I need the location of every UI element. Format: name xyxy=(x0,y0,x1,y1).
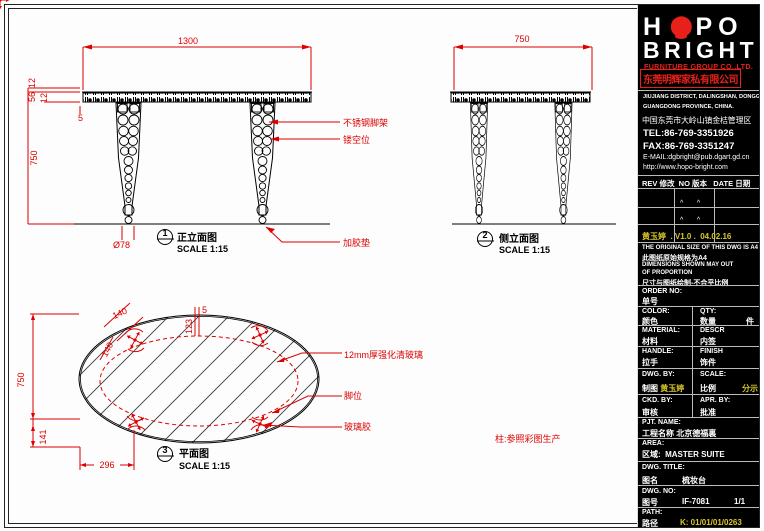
svg-text:12: 12 xyxy=(27,78,37,88)
svg-text:12mm厚强化清玻璃: 12mm厚强化清玻璃 xyxy=(344,349,423,360)
svg-text:141: 141 xyxy=(38,429,48,444)
svg-text:SCALE 1:15: SCALE 1:15 xyxy=(177,244,228,254)
svg-text:750: 750 xyxy=(514,34,529,44)
svg-text:750: 750 xyxy=(16,372,26,387)
svg-text:750: 750 xyxy=(29,150,39,165)
svg-text:柱:参照彩图生产: 柱:参照彩图生产 xyxy=(495,433,561,444)
svg-text:玻璃胶: 玻璃胶 xyxy=(344,421,371,432)
svg-text:镂空位: 镂空位 xyxy=(343,134,370,145)
svg-text:140: 140 xyxy=(111,306,129,321)
svg-text:3: 3 xyxy=(162,445,167,455)
svg-text:1300: 1300 xyxy=(178,36,198,46)
svg-text:不锈钢脚架: 不锈钢脚架 xyxy=(343,117,388,128)
svg-text:脚位: 脚位 xyxy=(344,390,362,401)
svg-text:5: 5 xyxy=(202,305,207,315)
svg-text:5: 5 xyxy=(78,113,83,123)
svg-text:SCALE 1:15: SCALE 1:15 xyxy=(499,245,550,255)
svg-text:Ø78: Ø78 xyxy=(113,240,130,250)
svg-text:侧立面图: 侧立面图 xyxy=(499,232,539,245)
svg-text:123: 123 xyxy=(184,319,194,334)
svg-text:正立面图: 正立面图 xyxy=(177,231,217,244)
svg-text:加胶垫: 加胶垫 xyxy=(343,237,370,248)
svg-text:2: 2 xyxy=(482,230,487,240)
svg-text:296: 296 xyxy=(99,460,114,470)
svg-text:56: 56 xyxy=(27,92,37,102)
svg-text:平面图: 平面图 xyxy=(179,448,209,460)
svg-text:SCALE 1:15: SCALE 1:15 xyxy=(179,461,230,471)
svg-text:1: 1 xyxy=(162,228,167,238)
svg-text:12: 12 xyxy=(39,93,49,103)
